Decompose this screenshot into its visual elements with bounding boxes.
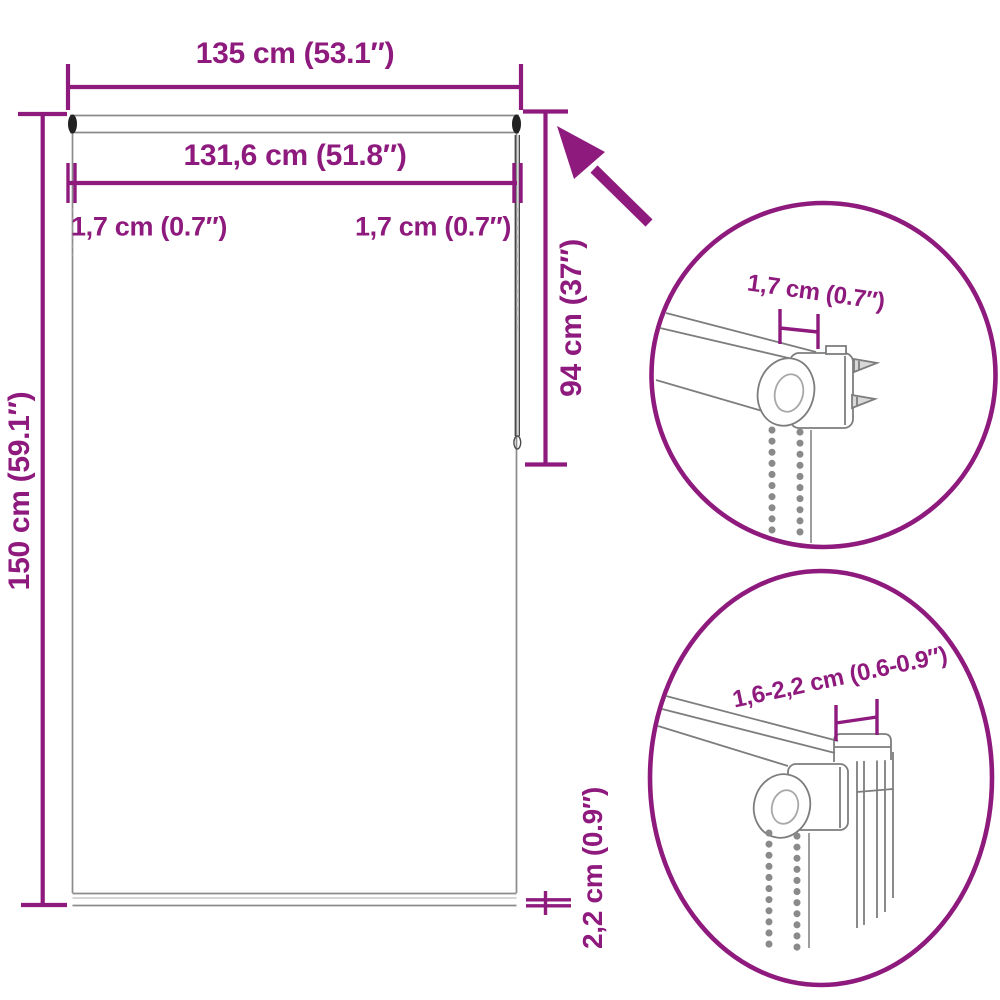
screw-icons xyxy=(852,359,877,408)
detail-top-dim-ticks xyxy=(780,309,818,349)
dim-bottom-bar-label: 2,2 cm (0.9″) xyxy=(579,787,607,949)
dim-side-gap-left-label: 1,7 cm (0.7″) xyxy=(71,214,227,241)
dim-fabric-width-label: 131,6 cm (51.8″) xyxy=(183,141,406,171)
roller-end-cap-left-icon xyxy=(68,115,77,134)
dim-width-total-label: 135 cm (53.1″) xyxy=(196,39,395,69)
diagram-linework xyxy=(0,0,1000,1000)
roller-end-cap-right-icon xyxy=(512,115,521,134)
dimension-ticks xyxy=(68,163,571,915)
dim-chain-length-label: 94 cm (37″) xyxy=(557,239,587,397)
dimension-lines xyxy=(18,64,568,907)
detail-top-drawing xyxy=(656,309,877,543)
detail-arrow-icon xyxy=(557,126,649,223)
dim-side-gap-right-label: 1,7 cm (0.7″) xyxy=(355,214,511,241)
dimension-diagram: 135 cm (53.1″) 131,6 cm (51.8″) 1,7 cm (… xyxy=(0,0,1000,1000)
dim-height-total-label: 150 cm (59.1″) xyxy=(5,392,35,591)
